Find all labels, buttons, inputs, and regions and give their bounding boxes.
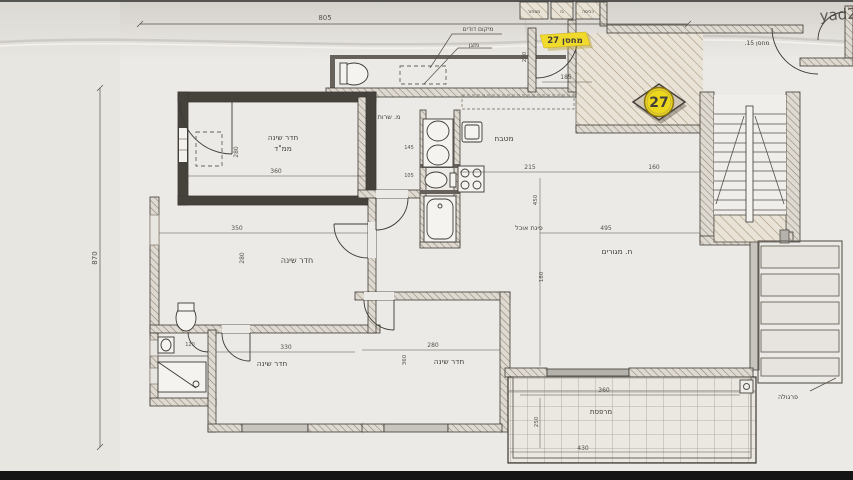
label-bedroom-mamad-line2: ממ"ד (274, 144, 292, 153)
label-closet-left: מסתור (528, 10, 541, 15)
dim-bedroom-bl-width: 330 (280, 344, 292, 351)
pergola (758, 241, 842, 391)
dim-balcony-depth: 250 (534, 416, 540, 427)
label-bedroom-bottom-left: חדר שינה (257, 359, 288, 368)
label-service-room: מ. שרות (378, 113, 401, 121)
dim-living-inner: 180 (539, 271, 545, 282)
label-boiler-note: מיקום דודים (463, 26, 494, 33)
dim-bedroom-bm-width: 280 (427, 342, 439, 349)
dim-total-width: 805 (318, 14, 331, 22)
dim-entry-depth: 200 (522, 51, 528, 62)
dim-bath-width: 120 (185, 342, 195, 348)
stairwell (714, 95, 789, 243)
dim-living-width: 495 (600, 225, 612, 232)
dim-mamad-width: 360 (270, 168, 282, 175)
balcony-drain (740, 380, 753, 393)
mamad-window (179, 128, 187, 162)
label-bedroom-mamad-line1: חדר שינה (268, 133, 299, 142)
label-pergola: פרגולה (778, 393, 798, 401)
dim-hall-width: 215 (524, 164, 536, 171)
dim-total-height: 870 (91, 251, 99, 264)
toilet-core (425, 172, 447, 188)
dim-mamad-height: 280 (233, 146, 240, 158)
bathtub (424, 196, 456, 242)
pergola-slat (761, 358, 839, 376)
dim-bedroom-left-height: 280 (239, 252, 246, 264)
bottom-bar (0, 471, 853, 480)
dim-bedroom-left-width: 350 (231, 225, 243, 232)
label-ac-note: מזגן (469, 42, 479, 49)
label-dining-nook: פינת אוכל (515, 224, 543, 232)
dim-living-height: 450 (533, 194, 539, 205)
top-bar (0, 0, 853, 2)
floorplan-scan: 805 870 360 280 350 280 330 280 360 215 … (0, 0, 853, 480)
dim-balcony-outer: 430 (577, 445, 589, 452)
dim-hall-to-stairs: 160 (648, 164, 660, 171)
label-balcony: מרפסת (590, 408, 612, 416)
bedroom-bl-window (242, 424, 308, 432)
double-vanity (423, 119, 453, 167)
storage-27-tag-text: מחסן 27 (547, 36, 583, 46)
pergola-slat (761, 274, 839, 296)
dim-service-a: 145 (404, 145, 414, 151)
label-closet-right: כביסה (582, 10, 594, 15)
label-bedroom-left: חדר שינה (281, 256, 314, 265)
label-living-room: ח. מגורים (602, 247, 633, 256)
storage-27-highlight-tag: מחסן 27 (540, 32, 593, 51)
bedroom-bm-window (384, 424, 448, 432)
pergola-slat (761, 302, 839, 324)
label-closet-mid: גז (560, 10, 564, 15)
balcony (508, 377, 756, 463)
floorplan-svg: 805 870 360 280 350 280 330 280 360 215 … (0, 0, 853, 480)
bedroom-left-window (150, 215, 159, 245)
badge-number: 27 (649, 95, 668, 111)
dim-service-b: 105 (404, 173, 414, 179)
dim-bedroom-bm-height: 360 (402, 354, 408, 365)
yad2-watermark: yad2 (819, 4, 853, 25)
storage-27-area (576, 33, 703, 130)
living-south-window (547, 369, 629, 376)
dim-entry-width: 185 (560, 74, 572, 81)
label-bedroom-bottom-mid: חדר שינה (434, 357, 465, 366)
label-kitchen: מטבח (494, 134, 513, 143)
dim-balcony-width: 360 (598, 387, 610, 394)
pergola-slat (761, 246, 839, 268)
pergola-slat (761, 330, 839, 352)
label-storage-neighbor: מחסן 15. (745, 40, 770, 47)
